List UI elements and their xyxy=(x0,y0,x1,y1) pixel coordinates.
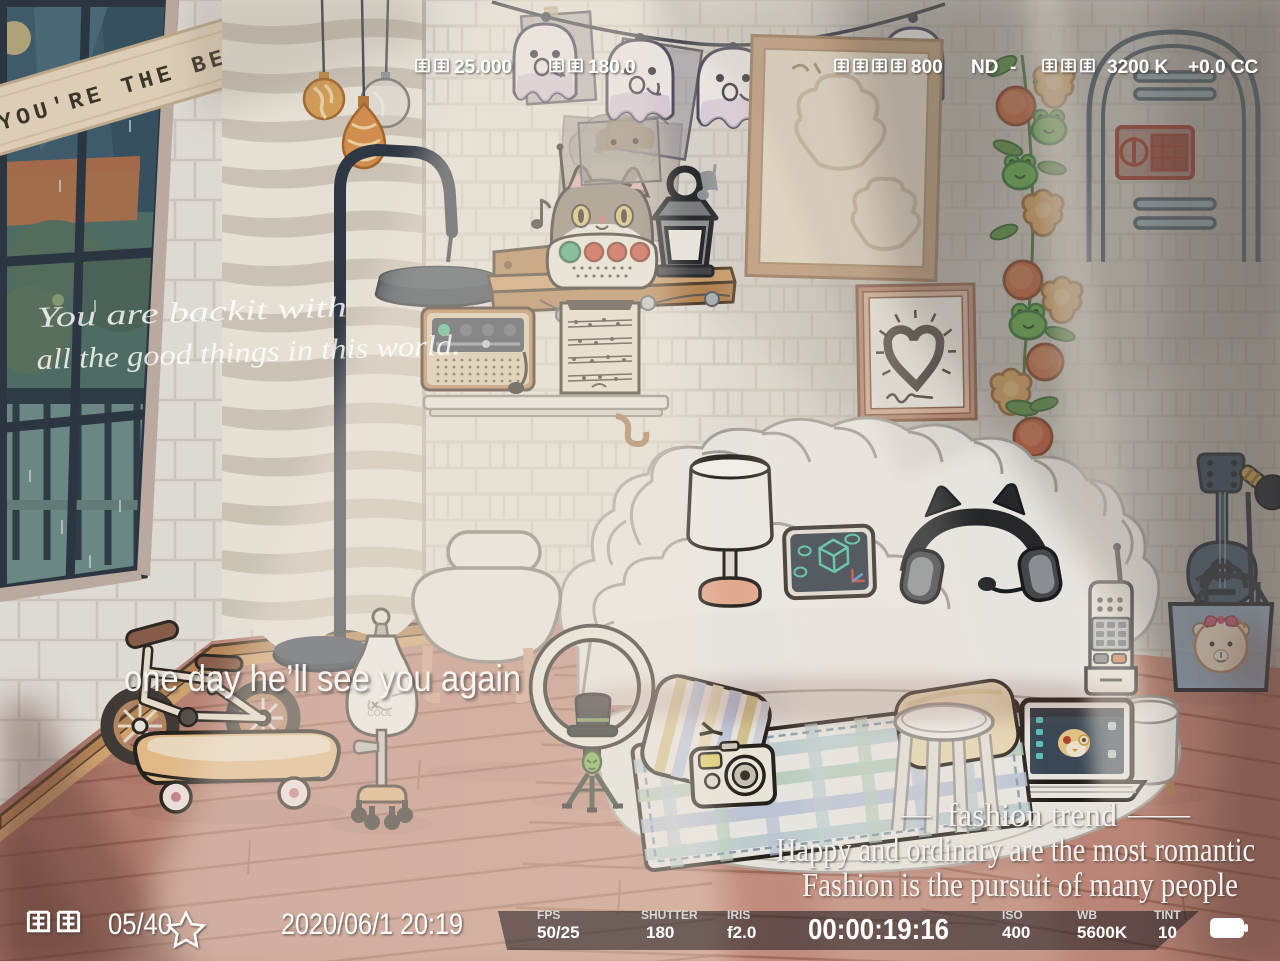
svg-text:ND: ND xyxy=(971,57,998,78)
svg-text:180: 180 xyxy=(646,923,674,942)
svg-text:SHUTTER: SHUTTER xyxy=(641,908,698,922)
svg-text:00:00:19:16: 00:00:19:16 xyxy=(808,914,949,946)
svg-text:——: —— xyxy=(1127,796,1191,831)
svg-text:400: 400 xyxy=(1002,923,1030,942)
svg-text:FPS: FPS xyxy=(537,908,560,922)
svg-text:05/40: 05/40 xyxy=(108,908,172,941)
svg-text:—: — xyxy=(899,796,932,831)
svg-text:ISO: ISO xyxy=(1002,908,1023,922)
svg-text:50/25: 50/25 xyxy=(537,923,580,942)
svg-text:f2.0: f2.0 xyxy=(727,923,756,942)
svg-text:10: 10 xyxy=(1158,923,1177,942)
svg-text:3200 K: 3200 K xyxy=(1107,57,1169,78)
svg-text:fashion trend: fashion trend xyxy=(947,798,1117,834)
svg-text:5600K: 5600K xyxy=(1077,923,1128,942)
svg-text:IRIS: IRIS xyxy=(727,908,750,922)
svg-text:TINT: TINT xyxy=(1154,908,1181,922)
svg-text:Fashion is the pursuit of many: Fashion is the pursuit of many people xyxy=(802,867,1238,904)
svg-text:25.000: 25.000 xyxy=(454,57,512,78)
svg-text:180.0: 180.0 xyxy=(588,57,636,78)
svg-text:one day he’ll see you again: one day he’ll see you again xyxy=(124,658,521,699)
svg-text:-: - xyxy=(1010,57,1016,78)
svg-text:2020/06/1 20:19: 2020/06/1 20:19 xyxy=(281,908,463,941)
svg-text:+0.0 CC: +0.0 CC xyxy=(1188,57,1259,78)
svg-text:Happy and ordinary are the mos: Happy and ordinary are the most romantic xyxy=(776,832,1255,869)
svg-text:WB: WB xyxy=(1077,908,1097,922)
svg-text:800: 800 xyxy=(911,57,943,78)
